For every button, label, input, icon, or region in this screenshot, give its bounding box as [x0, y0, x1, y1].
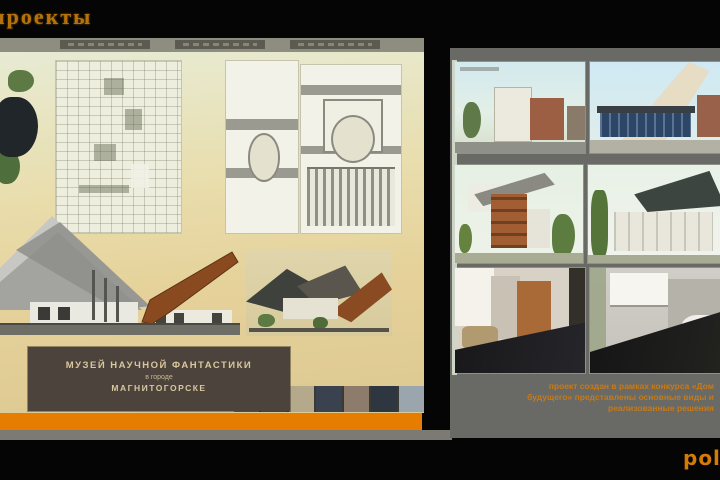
- studio-logo: polis: [683, 446, 720, 470]
- plan-hatch: [307, 167, 395, 226]
- photo-segment: [344, 386, 369, 412]
- project-sheet: МУЗЕЙ НАУЧНОЙ ФАНТАСТИКИ в городе МАГНИТ…: [0, 38, 424, 430]
- tree-symbol: [8, 70, 34, 92]
- presentation-page: проекты: [0, 0, 720, 480]
- ground: [588, 255, 720, 263]
- thumb-exterior-street-view: [455, 62, 585, 153]
- plan-rotunda: [248, 133, 281, 182]
- window: [58, 307, 70, 320]
- white-building: [614, 212, 713, 251]
- plan-rotunda: [331, 115, 375, 163]
- floor-plan-3: [300, 64, 402, 234]
- building-elevation-drawing: [0, 210, 240, 345]
- floor-plan-2: [225, 60, 299, 234]
- sheet-header-strip: [0, 38, 424, 52]
- building-white-tower: [494, 87, 532, 142]
- drawing-area: МУЗЕЙ НАУЧНОЙ ФАНТАСТИКИ в городе МАГНИТ…: [0, 52, 424, 413]
- plan-band: [301, 85, 401, 95]
- tree: [459, 224, 472, 253]
- gallery-caption: проект создан в рамках конкурса «Дом буд…: [454, 381, 714, 414]
- ground: [590, 140, 720, 153]
- thumb-exterior-garden-view: [588, 165, 720, 263]
- inset-wall-white: [283, 298, 338, 319]
- building-brick-block: [530, 98, 564, 140]
- project-title-line2: в городе: [28, 374, 290, 381]
- plan-tab-3-text-smudge: [298, 43, 372, 46]
- floor-plan-1: [55, 60, 182, 234]
- tree: [463, 102, 481, 138]
- sheet-base-strip: [0, 430, 452, 440]
- brick-wing: [697, 95, 720, 137]
- glazing-band: [600, 113, 691, 137]
- thumb-label-smudge: [460, 67, 499, 72]
- column: [116, 286, 119, 322]
- inset-ground: [249, 328, 389, 331]
- photo-segment: [316, 386, 341, 412]
- thumb-interior-gallery: [590, 268, 720, 373]
- plan-room: [125, 109, 143, 130]
- window-light: [610, 273, 669, 307]
- caption-line3: реализованные решения: [454, 403, 714, 414]
- photo-segment: [371, 386, 396, 412]
- plan-tab-1: [60, 40, 150, 49]
- inset-bush: [258, 314, 276, 328]
- photo-segment: [289, 386, 314, 412]
- plan-room: [104, 78, 124, 95]
- plan-tab-2-text-smudge: [183, 43, 257, 46]
- page-title: проекты: [0, 4, 92, 30]
- project-title-box: МУЗЕЙ НАУЧНОЙ ФАНТАСТИКИ в городе МАГНИТ…: [28, 347, 290, 411]
- column: [92, 270, 95, 320]
- plan-tab-3: [290, 40, 380, 49]
- render-gallery-panel: проект создан в рамках конкурса «Дом буд…: [450, 48, 720, 438]
- plan-room: [94, 144, 117, 161]
- plan-room: [79, 185, 129, 194]
- plan-tab-2: [175, 40, 265, 49]
- window: [174, 313, 184, 323]
- project-title-line3: МАГНИТОГОРСКЕ: [28, 383, 290, 393]
- caption-line2: будущего» представлены основные виды и: [454, 392, 714, 403]
- photo-segment: [399, 386, 424, 412]
- plan-tab-1-text-smudge: [68, 43, 142, 46]
- plan-room: [131, 164, 149, 188]
- accent-orange-bar: [0, 413, 422, 430]
- building-side-block: [567, 106, 585, 141]
- window: [212, 313, 222, 323]
- inset-rendering: [246, 250, 392, 336]
- thumb-interior-hall: [455, 268, 585, 373]
- thumb-exterior-sail-view: [590, 62, 720, 153]
- ground: [455, 253, 583, 263]
- brown-facade: [491, 194, 527, 248]
- tree: [552, 214, 575, 258]
- window: [38, 307, 50, 320]
- caption-line1: проект создан в рамках конкурса «Дом: [454, 381, 714, 392]
- project-title-line1: МУЗЕЙ НАУЧНОЙ ФАНТАСТИКИ: [28, 360, 290, 371]
- tree: [591, 190, 608, 259]
- ground-band: [0, 325, 240, 335]
- column: [104, 278, 107, 322]
- ground: [455, 142, 585, 153]
- ground-line: [0, 323, 240, 325]
- site-plan-blob: [0, 97, 38, 157]
- window-light: [455, 268, 494, 326]
- roof-edge: [597, 106, 696, 113]
- white-wing: [527, 209, 550, 248]
- plan-band: [226, 119, 298, 129]
- thumb-exterior-corner-view: [455, 165, 583, 263]
